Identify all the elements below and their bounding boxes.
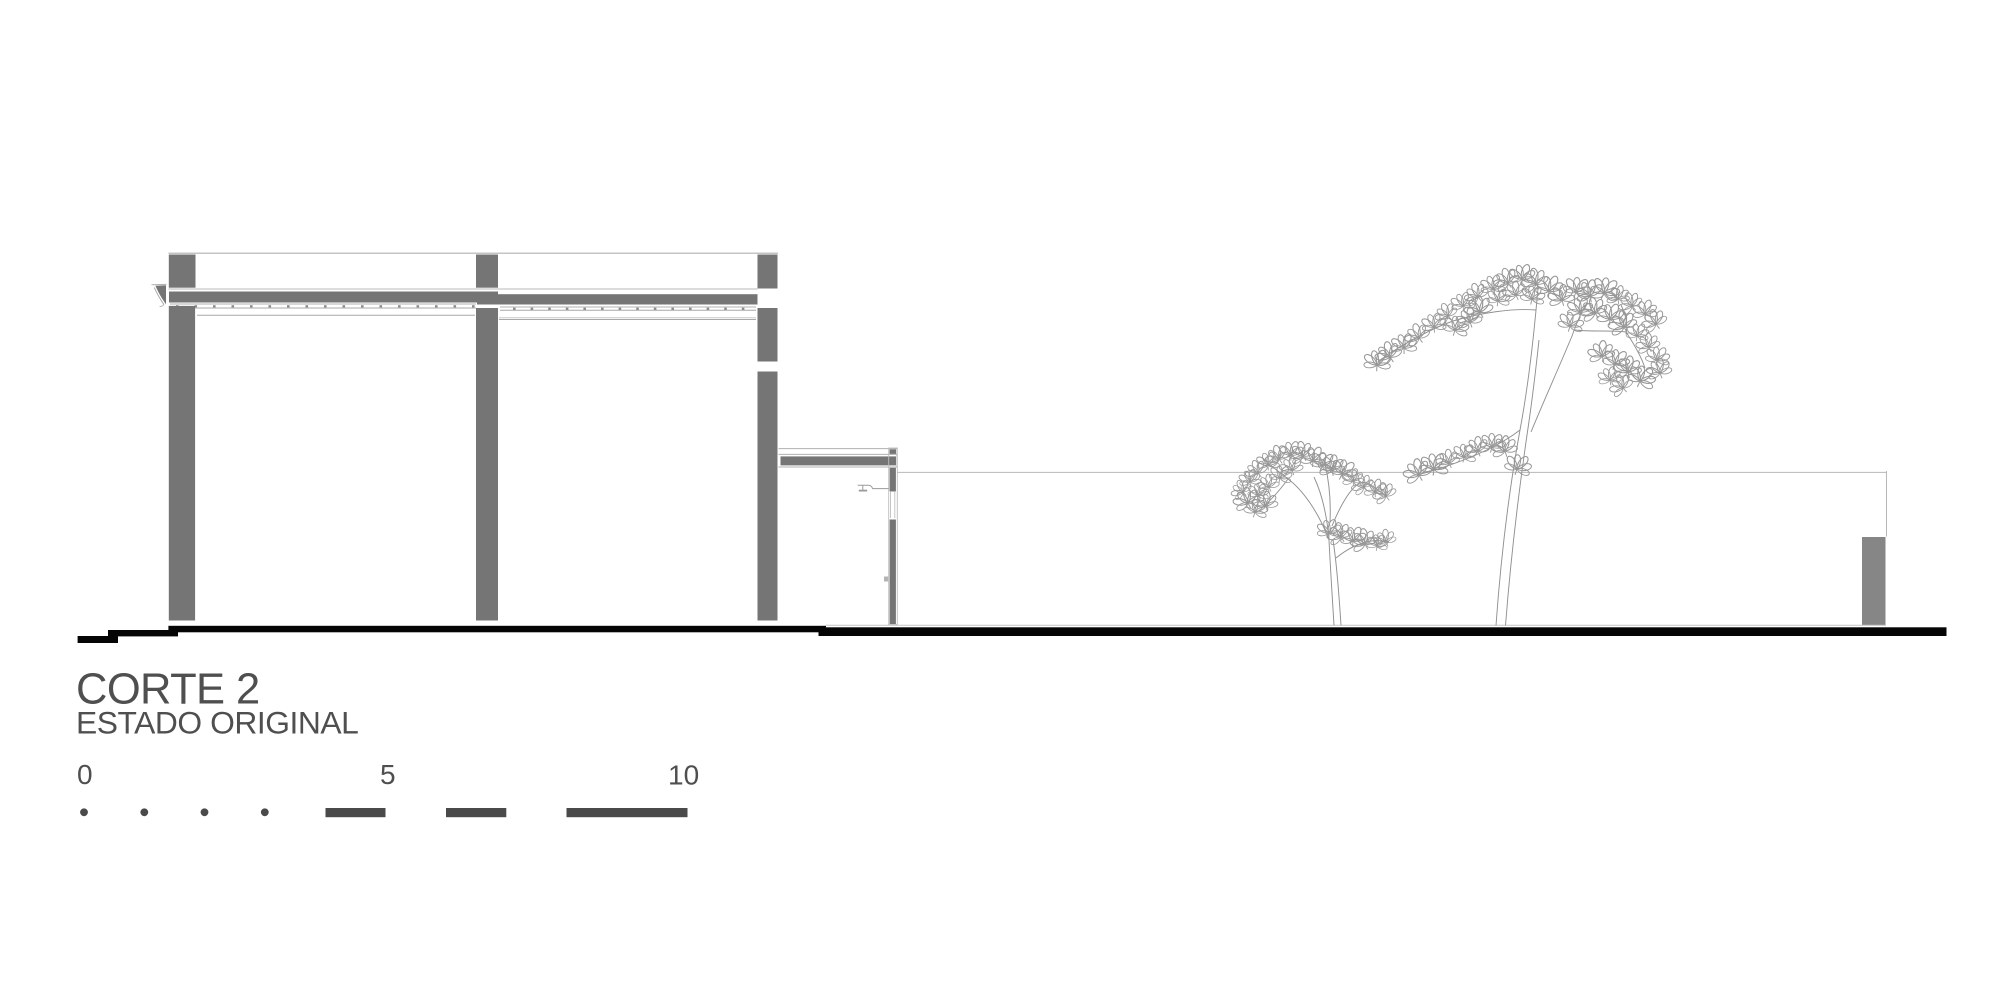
svg-text:5: 5 [380,759,396,790]
svg-text:ESTADO ORIGINAL: ESTADO ORIGINAL [76,704,358,740]
svg-text:0: 0 [77,759,93,790]
svg-text:10: 10 [668,760,699,791]
